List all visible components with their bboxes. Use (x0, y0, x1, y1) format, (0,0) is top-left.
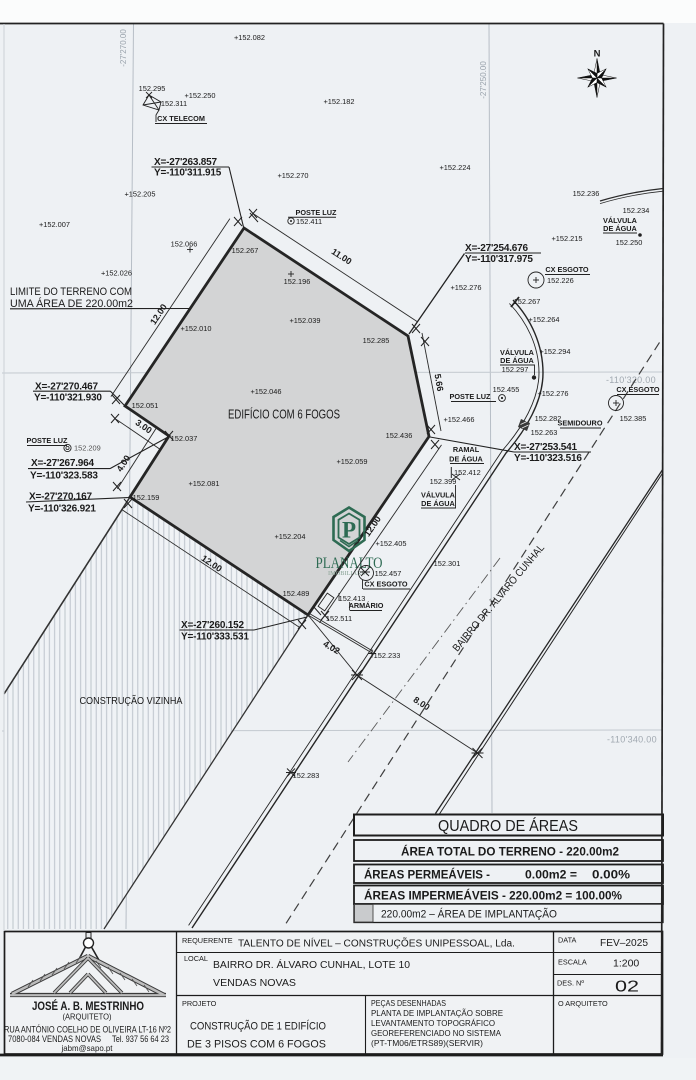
svg-text:152.066: 152.066 (171, 240, 198, 249)
svg-text:X=-27'260.152: X=-27'260.152 (181, 620, 245, 631)
svg-text:152.267: 152.267 (232, 246, 259, 255)
svg-text:152.196: 152.196 (284, 277, 311, 286)
svg-text:152.385: 152.385 (620, 414, 647, 423)
svg-text:0.00%: 0.00% (592, 870, 630, 882)
svg-text:ÁREAS PERMEÁVEIS -: ÁREAS PERMEÁVEIS - (364, 869, 490, 882)
svg-text:X=-27'254.676: X=-27'254.676 (465, 243, 529, 254)
svg-text:152.051: 152.051 (132, 401, 159, 410)
svg-text:+152.294: +152.294 (539, 347, 570, 356)
svg-text:EDIFÍCIO COM 6 FOGOS: EDIFÍCIO COM 6 FOGOS (228, 407, 340, 422)
svg-text:LIMITE DO TERRENO COM: LIMITE DO TERRENO COM (10, 286, 132, 298)
svg-text:UMA ÁREA DE 220.00m2: UMA ÁREA DE 220.00m2 (10, 297, 133, 310)
svg-text:X=-27'253.541: X=-27'253.541 (514, 442, 578, 453)
svg-text:RAMAL: RAMAL (453, 445, 480, 454)
svg-text:152.285: 152.285 (363, 336, 390, 345)
svg-text:Y=-110'311.915: Y=-110'311.915 (154, 168, 222, 179)
svg-text:ESCALA: ESCALA (558, 958, 587, 967)
svg-text:O ARQUITETO: O ARQUITETO (558, 999, 608, 1008)
svg-text:+152.224: +152.224 (439, 163, 470, 172)
svg-text:-110'320.00: -110'320.00 (606, 375, 656, 385)
svg-text:152.436: 152.436 (386, 431, 413, 440)
svg-text:0.00m2 =: 0.00m2 = (525, 870, 577, 882)
svg-text:REQUERENTE: REQUERENTE (182, 936, 233, 945)
svg-text:QUADRO DE ÁREAS: QUADRO DE ÁREAS (438, 816, 578, 835)
svg-text:+152.264: +152.264 (528, 315, 559, 324)
svg-text:152.037: 152.037 (171, 434, 198, 443)
svg-text:+152.007: +152.007 (39, 220, 70, 229)
svg-text:152.234: 152.234 (623, 206, 650, 215)
svg-text:+152.215: +152.215 (551, 234, 582, 243)
svg-text:152.311: 152.311 (161, 99, 187, 108)
svg-text:152.283: 152.283 (293, 771, 320, 780)
svg-text:ARMÁRIO: ARMÁRIO (349, 601, 384, 610)
svg-text:-27'250.00: -27'250.00 (479, 61, 488, 99)
svg-text:(PT-TM06/ETRS89)(SERVIR): (PT-TM06/ETRS89)(SERVIR) (371, 1039, 483, 1048)
svg-text:152.301: 152.301 (434, 559, 461, 568)
svg-text:-110'340.00: -110'340.00 (607, 735, 657, 745)
svg-text:+152.270: +152.270 (277, 171, 308, 180)
svg-text:CONSTRUÇÃO VIZINHA: CONSTRUÇÃO VIZINHA (80, 694, 183, 707)
svg-text:jabm@sapo.pt: jabm@sapo.pt (61, 1043, 114, 1053)
svg-text:+152.466: +152.466 (443, 415, 474, 424)
svg-text:+152.204: +152.204 (274, 532, 305, 541)
svg-text:1:200: 1:200 (613, 958, 639, 970)
svg-text:152.250: 152.250 (616, 238, 643, 247)
svg-text:VENDAS NOVAS: VENDAS NOVAS (213, 978, 296, 989)
svg-text:152.159: 152.159 (133, 493, 160, 502)
svg-text:DE ÁGUA: DE ÁGUA (500, 356, 534, 365)
svg-text:+152.039: +152.039 (289, 316, 320, 325)
svg-text:+152.276: +152.276 (537, 389, 568, 398)
svg-text:DE 3 PISOS COM 6 FOGOS: DE 3 PISOS COM 6 FOGOS (187, 1039, 326, 1051)
svg-text:02: 02 (615, 979, 639, 996)
svg-text:P: P (342, 518, 356, 543)
svg-text:CONSTRUÇÃO DE 1 EDIFÍCIO: CONSTRUÇÃO DE 1 EDIFÍCIO (190, 1020, 326, 1033)
svg-text:PEÇAS DESENHADAS: PEÇAS DESENHADAS (371, 999, 446, 1008)
svg-text:+152.010: +152.010 (180, 324, 211, 333)
svg-text:152.457: 152.457 (375, 569, 402, 578)
svg-text:LEVANTAMENTO TOPOGRÁFICO: LEVANTAMENTO TOPOGRÁFICO (371, 1019, 495, 1028)
svg-text:TALENTO DE NÍVEL – CONSTRUÇÕES: TALENTO DE NÍVEL – CONSTRUÇÕES UNIPESSOA… (238, 937, 515, 950)
svg-text:CX ESGOTO: CX ESGOTO (364, 580, 408, 589)
svg-text:FEV–2025: FEV–2025 (600, 937, 648, 949)
svg-text:ÁREAS IMPERMEÁVEIS - 220.00m2: ÁREAS IMPERMEÁVEIS - 220.00m2 = 100.00% (364, 890, 622, 903)
svg-text:RUA ANTÓNIO COELHO DE OLIVEIRA: RUA ANTÓNIO COELHO DE OLIVEIRA LT-16 Nº2 (4, 1025, 171, 1035)
svg-text:152.489: 152.489 (283, 589, 310, 598)
svg-text:+152.082: +152.082 (234, 33, 265, 42)
svg-text:+152.182: +152.182 (323, 97, 354, 106)
svg-text:Tel. 937 56 64 23: Tel. 937 56 64 23 (112, 1034, 169, 1044)
svg-text:152.236: 152.236 (573, 189, 600, 198)
svg-text:PROJETO: PROJETO (182, 999, 217, 1008)
svg-text:152.297: 152.297 (502, 365, 529, 374)
svg-text:N: N (594, 49, 601, 60)
svg-text:152.511: 152.511 (326, 614, 352, 623)
svg-text:Y=-110'317.975: Y=-110'317.975 (465, 254, 533, 265)
svg-text:Y=-110'326.921: Y=-110'326.921 (28, 504, 96, 515)
svg-text:+152.250: +152.250 (184, 91, 215, 100)
svg-text:152.455: 152.455 (493, 385, 520, 394)
svg-text:+152.026: +152.026 (101, 269, 132, 278)
svg-text:152.226: 152.226 (547, 276, 574, 285)
svg-text:152.233: 152.233 (374, 651, 401, 660)
svg-text:152.399: 152.399 (430, 477, 457, 486)
svg-text:SEMIDOURO: SEMIDOURO (558, 419, 603, 428)
svg-text:X=-27'263.857: X=-27'263.857 (154, 157, 218, 168)
svg-text:Y=-110'333.531: Y=-110'333.531 (181, 632, 249, 643)
svg-text:DE ÁGUA: DE ÁGUA (449, 455, 483, 464)
svg-text:DATA: DATA (558, 936, 577, 945)
svg-text:LOCAL: LOCAL (184, 954, 208, 963)
svg-text:IMOBILIÁRIA: IMOBILIÁRIA (328, 569, 368, 577)
svg-text:152.295: 152.295 (139, 84, 166, 93)
svg-text:+152.276: +152.276 (450, 283, 481, 292)
svg-text:DE ÁGUA: DE ÁGUA (421, 499, 455, 508)
svg-text:ÁREA TOTAL DO TERRENO - 220.00: ÁREA TOTAL DO TERRENO - 220.00m2 (401, 846, 619, 859)
svg-text:Y=-110'321.930: Y=-110'321.930 (34, 393, 102, 404)
svg-text:CX ESGOTO: CX ESGOTO (545, 265, 589, 274)
svg-text:X=-27'267.964: X=-27'267.964 (31, 458, 95, 469)
svg-text:Y=-110'323.516: Y=-110'323.516 (514, 453, 582, 464)
svg-text:+152.046: +152.046 (250, 387, 281, 396)
svg-text:CX ESGOTO: CX ESGOTO (616, 385, 660, 394)
svg-text:BAIRRO DR. ÁLVARO CUNHAL, LOTE: BAIRRO DR. ÁLVARO CUNHAL, LOTE 10 (213, 958, 410, 971)
svg-text:POSTE LUZ: POSTE LUZ (296, 208, 337, 217)
svg-text:152.209: 152.209 (74, 444, 101, 453)
svg-text:DES. Nº: DES. Nº (557, 979, 584, 988)
svg-text:GEOREFERENCIADO NO SISTEMA: GEOREFERENCIADO NO SISTEMA (371, 1029, 502, 1038)
svg-text:152.263: 152.263 (531, 428, 558, 437)
svg-text:+152.405: +152.405 (375, 539, 406, 548)
svg-text:DE ÁGUA: DE ÁGUA (603, 224, 637, 233)
svg-text:CX TELECOM: CX TELECOM (157, 114, 205, 123)
svg-text:152.411: 152.411 (296, 217, 322, 226)
svg-text:POSTE LUZ: POSTE LUZ (450, 392, 491, 401)
svg-text:POSTE LUZ: POSTE LUZ (27, 436, 68, 445)
svg-text:+152.059: +152.059 (336, 457, 367, 466)
svg-text:220.00m2 – ÁREA DE IMPLANT: 220.00m2 – ÁREA DE IMPLANTAÇÃO (381, 908, 557, 921)
svg-text:+152.205: +152.205 (124, 190, 155, 199)
svg-text:Y=-110'323.583: Y=-110'323.583 (30, 471, 98, 482)
svg-text:PLANTA DE IMPLANTAÇÃO SOBRE: PLANTA DE IMPLANTAÇÃO SOBRE (371, 1009, 503, 1018)
svg-text:(ARQUITETO): (ARQUITETO) (63, 1012, 112, 1022)
svg-text:-27'270.00: -27'270.00 (119, 29, 128, 67)
svg-text:+152.081: +152.081 (188, 479, 219, 488)
